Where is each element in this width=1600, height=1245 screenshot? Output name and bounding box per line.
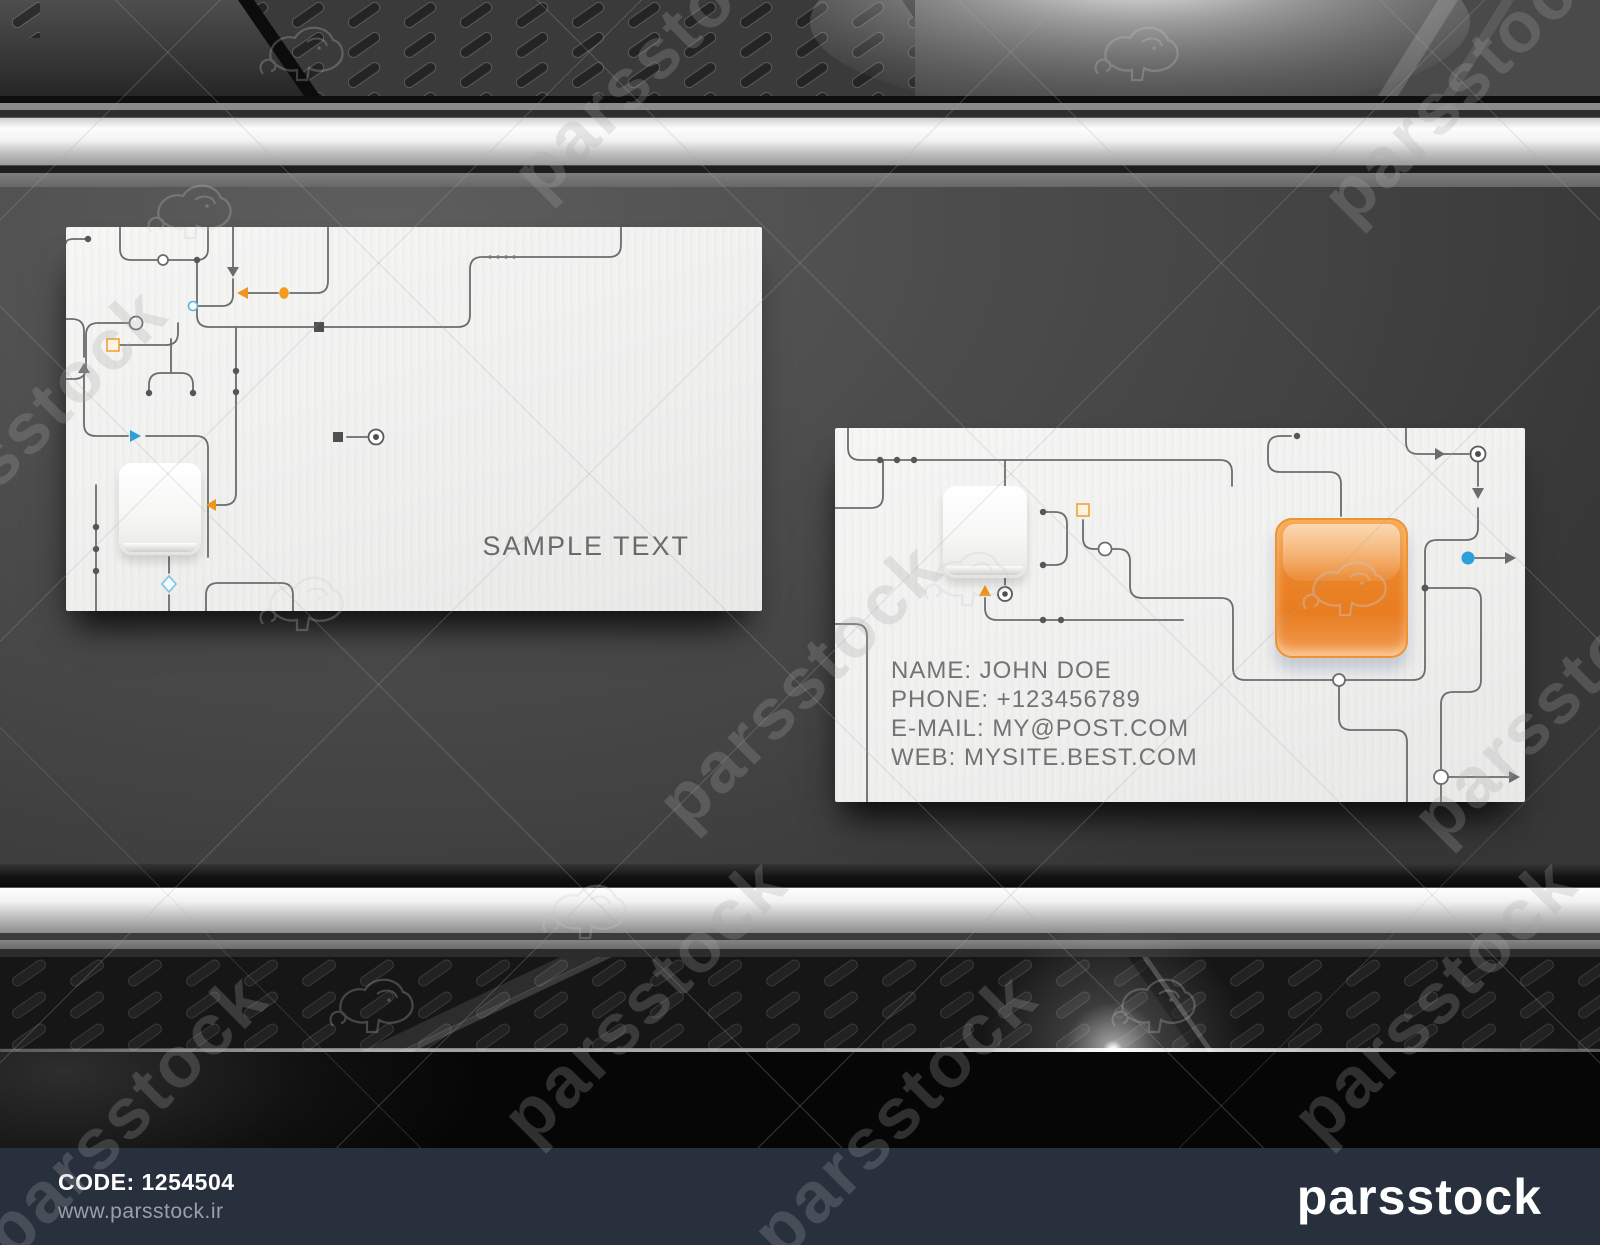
sample-text-label: SAMPLE TEXT [482,531,690,562]
embossed-key-shape [943,486,1027,578]
top-metal-band [0,0,1600,117]
chrome-bar-top [0,117,1600,166]
contact-web: WEB: MYSITE.BEST.COM [891,743,1198,772]
footer-info: CODE: 1254504 www.parsstock.ir [58,1169,235,1224]
parsstock-logo: parsstock [1297,1168,1542,1226]
divider-strip [0,949,1600,957]
contact-info-block: NAME: JOHN DOE PHONE: +123456789 E-MAIL:… [891,656,1198,772]
contact-name: NAME: JOHN DOE [891,656,1198,685]
glossy-orange-square [1275,518,1408,658]
business-card-front: SAMPLE TEXT [66,227,762,611]
black-band [0,1052,1600,1148]
divider-strip [0,940,1600,949]
tread-band-bottom [0,957,1600,1052]
chrome-bar-bottom [0,887,1600,933]
stock-preview-image: SAMPLE TEXT [0,0,1600,1245]
contact-phone: PHONE: +123456789 [891,685,1198,714]
preview-stage: SAMPLE TEXT [0,187,1600,864]
stage-bottom-shadow [0,864,1600,887]
embossed-key-shape [119,463,201,555]
image-code-label: CODE: 1254504 [58,1169,235,1196]
divider-strip [0,166,1600,173]
divider-strip [0,173,1600,187]
business-card-back: NAME: JOHN DOE PHONE: +123456789 E-MAIL:… [835,428,1525,802]
divider-strip [0,933,1600,940]
footer-bar: CODE: 1254504 www.parsstock.ir parsstock [0,1148,1600,1245]
site-url-label: www.parsstock.ir [58,1200,235,1224]
contact-email: E-MAIL: MY@POST.COM [891,714,1198,743]
